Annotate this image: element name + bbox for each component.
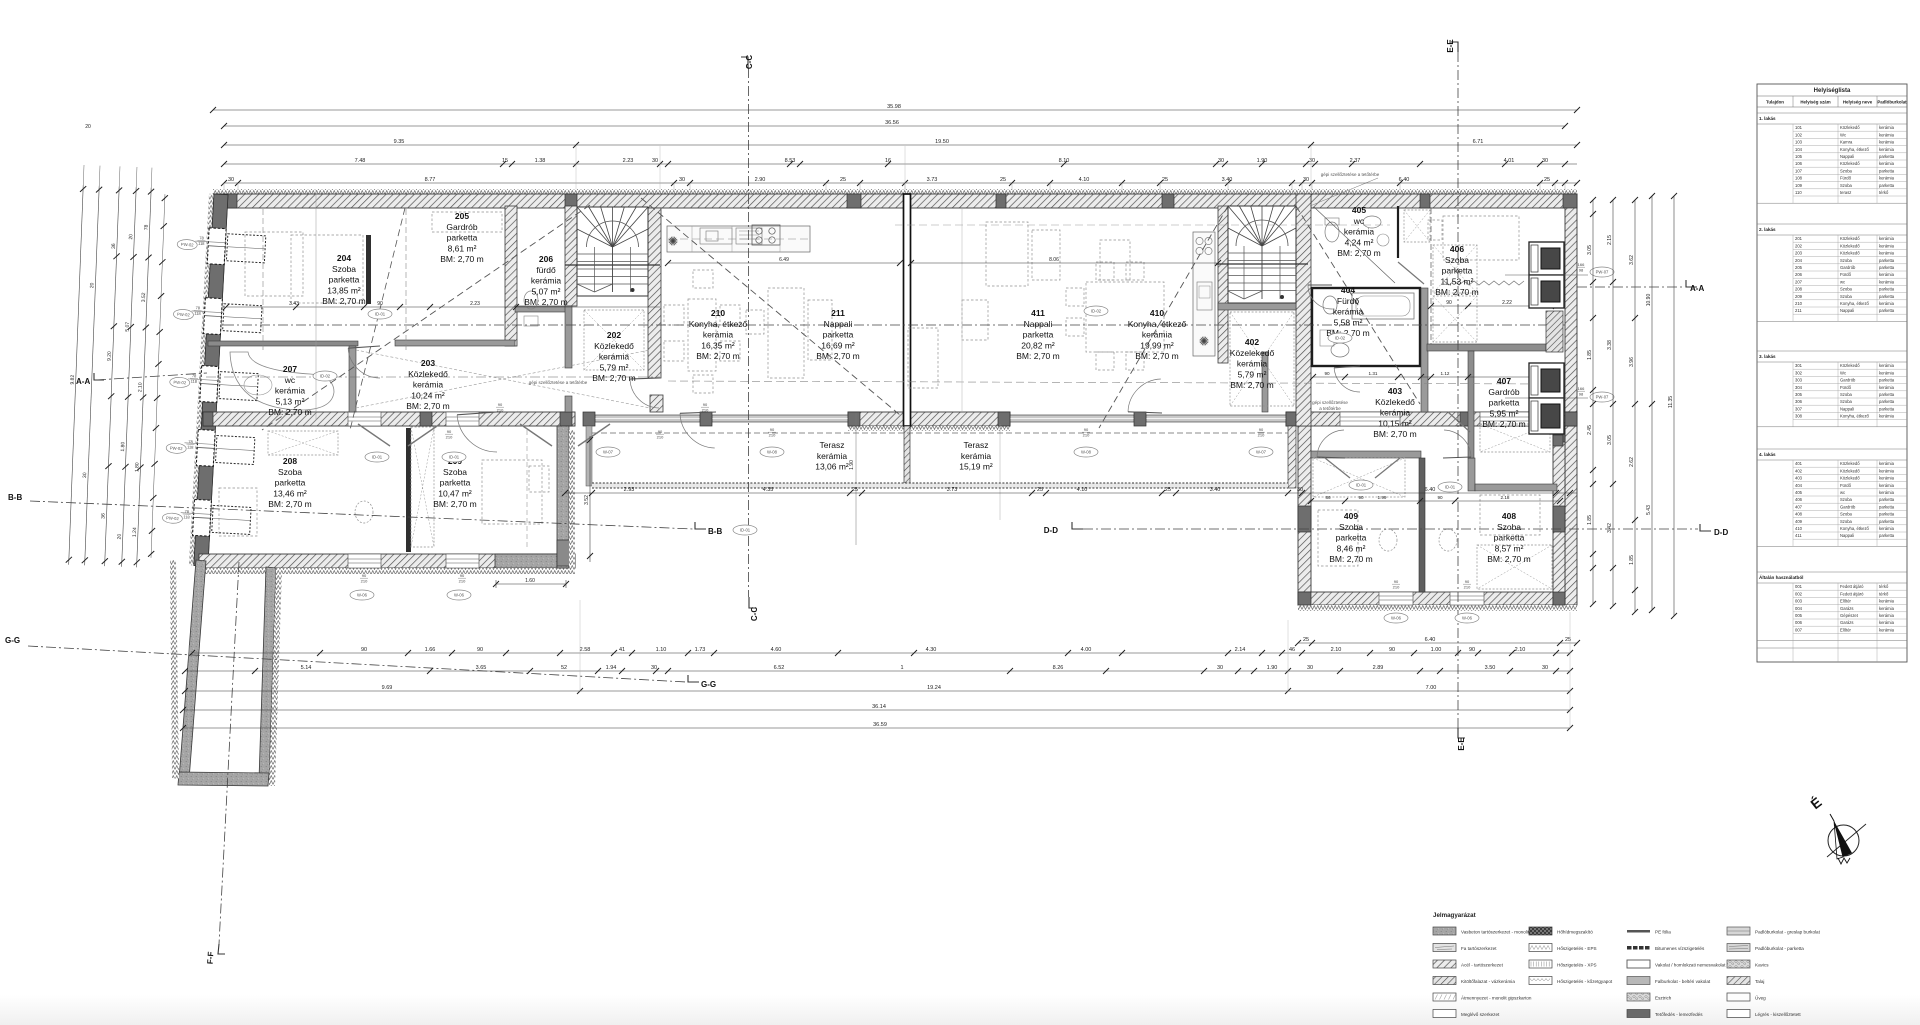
svg-text:kerámia: kerámia	[1879, 468, 1895, 473]
svg-text:BM: 2,70 m: BM: 2,70 m	[1435, 287, 1478, 297]
svg-text:2.10: 2.10	[137, 382, 143, 392]
svg-text:401: 401	[1795, 461, 1803, 466]
svg-text:Fedett átjáró: Fedett átjáró	[1840, 591, 1864, 596]
svg-text:kerámia: kerámia	[961, 451, 992, 461]
svg-text:ID-02: ID-02	[1091, 309, 1102, 314]
svg-text:W-08: W-08	[1081, 450, 1092, 455]
svg-text:104: 104	[1795, 147, 1803, 152]
svg-text:Konyha, étkező: Konyha, étkező	[1840, 147, 1870, 152]
svg-text:Helyiség neve: Helyiség neve	[1843, 100, 1873, 105]
svg-text:2. lakás: 2. lakás	[1759, 227, 1776, 232]
svg-text:8.77: 8.77	[425, 177, 436, 183]
svg-text:405: 405	[1795, 490, 1803, 495]
svg-text:Acél - tartószerkezet: Acél - tartószerkezet	[1461, 962, 1504, 967]
svg-text:Kavics: Kavics	[1755, 962, 1769, 967]
svg-text:202: 202	[1795, 243, 1803, 248]
svg-text:402: 402	[1795, 468, 1803, 473]
svg-text:Szoba: Szoba	[278, 467, 302, 477]
svg-text:1.10: 1.10	[656, 647, 667, 653]
svg-text:404: 404	[1341, 285, 1355, 295]
svg-text:20: 20	[117, 534, 123, 540]
svg-text:Fürdő: Fürdő	[1840, 483, 1852, 488]
svg-text:3.52: 3.52	[584, 495, 590, 505]
svg-text:kerámia: kerámia	[1879, 476, 1895, 481]
svg-text:4.00: 4.00	[1081, 647, 1092, 653]
svg-text:ID-01: ID-01	[1445, 485, 1456, 490]
svg-text:304: 304	[1795, 385, 1803, 390]
svg-text:E-E: E-E	[1457, 737, 1466, 751]
svg-text:parketta: parketta	[1879, 406, 1895, 411]
svg-text:Közlekedő: Közlekedő	[408, 369, 448, 379]
svg-text:parketta: parketta	[1879, 154, 1895, 159]
svg-text:Nappali: Nappali	[1840, 308, 1854, 313]
svg-text:BM: 2,70 m: BM: 2,70 m	[1337, 248, 1380, 258]
svg-text:10,24 m²: 10,24 m²	[411, 390, 445, 400]
svg-text:1.99: 1.99	[1378, 495, 1387, 500]
svg-text:3.73: 3.73	[947, 487, 958, 493]
svg-text:kerámia: kerámia	[275, 386, 306, 396]
svg-text:kerámia: kerámia	[413, 380, 444, 390]
svg-text:36.14: 36.14	[872, 704, 886, 710]
svg-text:110: 110	[1795, 190, 1802, 195]
svg-text:PW-07: PW-07	[1596, 270, 1609, 275]
svg-text:Konyha, étkező: Konyha, étkező	[689, 319, 748, 329]
svg-text:Jelmagyarázat: Jelmagyarázat	[1433, 912, 1476, 919]
svg-text:W-06: W-06	[1462, 616, 1473, 621]
svg-text:Szoba: Szoba	[1497, 522, 1521, 532]
svg-text:118: 118	[198, 241, 205, 246]
svg-text:8,57 m²: 8,57 m²	[1495, 543, 1524, 553]
svg-text:90: 90	[1324, 371, 1330, 376]
svg-text:2.93: 2.93	[624, 487, 635, 493]
svg-text:D-D: D-D	[1714, 528, 1728, 537]
svg-text:25: 25	[1165, 487, 1171, 493]
svg-text:406: 406	[1795, 497, 1803, 502]
svg-text:W-06: W-06	[1391, 616, 1402, 621]
svg-text:30: 30	[1542, 665, 1548, 671]
svg-text:parketta: parketta	[1879, 168, 1895, 173]
svg-text:9.82: 9.82	[70, 375, 76, 385]
svg-text:35.98: 35.98	[887, 104, 901, 110]
svg-text:30: 30	[679, 177, 685, 183]
svg-text:G-G: G-G	[701, 680, 716, 689]
svg-text:13,85 m²: 13,85 m²	[327, 285, 361, 295]
svg-text:gépi szellőztetése a tetőtérbe: gépi szellőztetése a tetőtérbe	[529, 380, 588, 385]
svg-text:15: 15	[502, 158, 508, 164]
svg-text:211: 211	[1795, 308, 1802, 313]
svg-text:BM: 2,70 m: BM: 2,70 m	[268, 407, 311, 417]
svg-text:Szoba: Szoba	[1840, 294, 1853, 299]
svg-text:Előtér: Előtér	[1840, 627, 1852, 632]
svg-text:204: 204	[337, 253, 351, 263]
svg-text:109: 109	[1795, 183, 1803, 188]
svg-text:210: 210	[1083, 433, 1090, 438]
svg-text:4,24 m²: 4,24 m²	[1345, 237, 1374, 247]
svg-text:205: 205	[1795, 265, 1803, 270]
svg-text:Szoba: Szoba	[1840, 519, 1853, 524]
svg-text:25: 25	[1544, 177, 1550, 183]
svg-text:Konyha, étkező: Konyha, étkező	[1840, 526, 1870, 531]
svg-text:3.05: 3.05	[1607, 435, 1613, 445]
svg-text:Közlekedő: Közlekedő	[1840, 363, 1860, 368]
svg-text:kerámia: kerámia	[1879, 606, 1895, 611]
svg-text:36.56: 36.56	[885, 120, 899, 126]
svg-text:Falburkolat - beltéri vakolat: Falburkolat - beltéri vakolat	[1655, 979, 1711, 984]
svg-text:PW-02: PW-02	[177, 312, 191, 318]
svg-text:B-B: B-B	[708, 527, 722, 536]
svg-text:90: 90	[1389, 647, 1395, 653]
svg-text:Hőszigetelés - EPS: Hőszigetelés - EPS	[1557, 946, 1597, 951]
svg-text:kerámia: kerámia	[1879, 279, 1895, 284]
svg-text:210: 210	[497, 408, 504, 413]
svg-text:2.62: 2.62	[1629, 457, 1635, 467]
svg-text:Szoba: Szoba	[1840, 497, 1853, 502]
svg-text:30: 30	[1542, 158, 1548, 164]
svg-text:Légrés - kiszellőztetett: Légrés - kiszellőztetett	[1755, 1012, 1801, 1017]
svg-text:Kitöltőfalazat - vázkerámia: Kitöltőfalazat - vázkerámia	[1461, 979, 1515, 984]
svg-text:1.80: 1.80	[134, 462, 140, 472]
svg-text:90: 90	[658, 429, 663, 434]
svg-text:Szoba: Szoba	[1445, 255, 1469, 265]
svg-text:106: 106	[1795, 161, 1803, 166]
svg-text:ID-01: ID-01	[372, 455, 383, 460]
svg-text:Helyiség szám: Helyiség szám	[1800, 100, 1830, 105]
svg-text:208: 208	[1795, 287, 1803, 292]
svg-text:20: 20	[128, 234, 134, 240]
svg-text:C-C: C-C	[745, 55, 754, 69]
svg-text:3.62: 3.62	[1629, 255, 1635, 265]
svg-text:206: 206	[1795, 272, 1803, 277]
svg-text:wc: wc	[1840, 279, 1845, 284]
svg-text:30: 30	[1217, 665, 1223, 671]
svg-text:parketta: parketta	[1879, 287, 1895, 292]
svg-text:Konyha, étkező: Konyha, étkező	[1840, 414, 1870, 419]
svg-text:Bitumenes vízszigetelés: Bitumenes vízszigetelés	[1655, 946, 1705, 951]
svg-text:PW-02: PW-02	[181, 242, 195, 248]
svg-text:90: 90	[447, 429, 452, 434]
svg-text:7.00: 7.00	[1426, 685, 1437, 691]
svg-text:211: 211	[831, 308, 845, 318]
svg-text:90: 90	[1469, 647, 1475, 653]
svg-text:Szoba: Szoba	[443, 467, 467, 477]
svg-text:005: 005	[1795, 613, 1803, 618]
svg-text:W-06: W-06	[454, 593, 465, 598]
svg-text:Tulajdon: Tulajdon	[1766, 100, 1784, 105]
svg-text:90: 90	[477, 647, 483, 653]
svg-text:4. lakás: 4. lakás	[1759, 452, 1776, 457]
svg-text:8.26: 8.26	[1053, 665, 1064, 671]
svg-text:Konyha, étkező: Konyha, étkező	[1840, 301, 1870, 306]
svg-text:Nappali: Nappali	[1840, 154, 1854, 159]
svg-text:3.40: 3.40	[1210, 487, 1221, 493]
svg-text:E-E: E-E	[1446, 39, 1455, 53]
svg-text:kerámia: kerámia	[1879, 526, 1895, 531]
svg-text:Közlekedő: Közlekedő	[1840, 161, 1860, 166]
svg-text:kerámia: kerámia	[1333, 307, 1364, 317]
svg-text:5,58 m²: 5,58 m²	[1334, 317, 1363, 327]
svg-text:306: 306	[1795, 399, 1803, 404]
svg-text:6.40: 6.40	[1399, 177, 1410, 183]
svg-text:4.60: 4.60	[771, 647, 782, 653]
svg-text:36: 36	[111, 243, 117, 249]
svg-text:BM: 2,70 m: BM: 2,70 m	[1016, 351, 1059, 361]
svg-text:kerámia: kerámia	[1879, 236, 1895, 241]
svg-text:15,19 m²: 15,19 m²	[959, 462, 993, 472]
svg-text:parketta: parketta	[329, 275, 360, 285]
svg-text:207: 207	[1795, 279, 1803, 284]
svg-text:203: 203	[1795, 251, 1803, 256]
svg-text:3.05: 3.05	[1587, 245, 1593, 255]
svg-text:ID-01: ID-01	[1356, 483, 1367, 488]
svg-text:Nappali: Nappali	[1840, 533, 1854, 538]
svg-text:101: 101	[1795, 125, 1803, 130]
svg-text:210: 210	[769, 433, 776, 438]
svg-text:térkő: térkő	[1879, 190, 1889, 195]
svg-text:118: 118	[183, 514, 190, 519]
svg-text:3.42: 3.42	[1607, 523, 1613, 533]
svg-text:407: 407	[1497, 376, 1511, 386]
svg-text:2.10: 2.10	[1331, 647, 1342, 653]
svg-text:Közelekedő: Közelekedő	[1230, 348, 1275, 358]
svg-text:90: 90	[1446, 300, 1452, 306]
svg-text:Tetőfedés - lemezfedés: Tetőfedés - lemezfedés	[1655, 1012, 1703, 1017]
svg-text:kerámia: kerámia	[1879, 243, 1895, 248]
svg-text:Közlekedő: Közlekedő	[1840, 251, 1860, 256]
svg-text:ID-02: ID-02	[1335, 336, 1346, 341]
svg-text:001: 001	[1795, 584, 1803, 589]
svg-text:90: 90	[1358, 495, 1364, 500]
svg-text:206: 206	[539, 254, 553, 264]
svg-text:BM: 2,70 m: BM: 2,70 m	[1329, 554, 1372, 564]
svg-text:wc: wc	[1353, 216, 1365, 226]
svg-text:90: 90	[770, 427, 775, 432]
svg-text:98: 98	[1579, 268, 1584, 273]
svg-text:parketta: parketta	[1879, 308, 1895, 313]
svg-text:210: 210	[1464, 585, 1471, 590]
svg-text:210: 210	[1393, 585, 1400, 590]
svg-text:78: 78	[144, 224, 150, 230]
svg-text:4.10: 4.10	[1077, 487, 1088, 493]
svg-text:19.50: 19.50	[935, 139, 949, 145]
svg-text:BM: 2,70 m: BM: 2,70 m	[1230, 380, 1273, 390]
svg-text:90: 90	[1394, 579, 1399, 584]
svg-text:BM: 2,70 m: BM: 2,70 m	[816, 351, 859, 361]
svg-text:6.40: 6.40	[1425, 637, 1436, 643]
svg-text:410: 410	[1150, 308, 1164, 318]
svg-text:19.24: 19.24	[927, 685, 941, 691]
svg-text:Közlekedő: Közlekedő	[1840, 461, 1860, 466]
svg-text:3.73: 3.73	[927, 177, 938, 183]
svg-text:411: 411	[1031, 308, 1045, 318]
svg-text:ID-02: ID-02	[320, 374, 331, 379]
svg-text:ID-01: ID-01	[449, 455, 460, 460]
svg-text:1.00: 1.00	[1431, 647, 1442, 653]
svg-text:403: 403	[1388, 386, 1402, 396]
svg-text:parketta: parketta	[440, 478, 471, 488]
svg-text:parketta: parketta	[1879, 378, 1895, 383]
svg-text:4.10: 4.10	[1079, 177, 1090, 183]
svg-text:8.53: 8.53	[785, 158, 796, 164]
svg-text:Szoba: Szoba	[1840, 392, 1853, 397]
svg-text:11.35: 11.35	[1668, 396, 1674, 408]
svg-text:kerámia: kerámia	[1879, 613, 1895, 618]
svg-text:kerámia: kerámia	[817, 451, 848, 461]
svg-text:kerámia: kerámia	[531, 276, 562, 286]
svg-text:102: 102	[1795, 132, 1803, 137]
svg-text:1. lakás: 1. lakás	[1759, 116, 1776, 121]
svg-text:A-A: A-A	[1690, 284, 1704, 293]
svg-text:kerámia: kerámia	[1344, 227, 1375, 237]
svg-text:4.35: 4.35	[763, 487, 774, 493]
svg-text:303: 303	[1795, 378, 1803, 383]
svg-text:3.50: 3.50	[1485, 665, 1496, 671]
svg-text:6.52: 6.52	[774, 665, 785, 671]
svg-text:BM: 2,70 m: BM: 2,70 m	[1482, 419, 1525, 429]
svg-text:Gépészet: Gépészet	[1840, 613, 1859, 618]
svg-text:36.59: 36.59	[873, 722, 887, 728]
svg-text:Wc: Wc	[1840, 132, 1846, 137]
svg-text:409: 409	[1795, 519, 1803, 524]
svg-text:86: 86	[1325, 495, 1331, 500]
svg-text:210: 210	[1258, 433, 1265, 438]
svg-text:3.43: 3.43	[289, 301, 299, 307]
svg-text:BM: 2,70 m: BM: 2,70 m	[433, 499, 476, 509]
svg-text:Nappali: Nappali	[1024, 319, 1053, 329]
svg-text:PW-02: PW-02	[166, 515, 180, 521]
svg-text:2.90: 2.90	[755, 177, 766, 183]
svg-text:210: 210	[459, 579, 466, 584]
svg-text:6.40: 6.40	[1425, 487, 1436, 493]
svg-text:kerámia: kerámia	[1879, 370, 1895, 375]
svg-text:Terasz: Terasz	[963, 440, 988, 450]
svg-text:Fürdő: Fürdő	[1337, 296, 1359, 306]
svg-text:16: 16	[885, 158, 891, 164]
svg-text:20: 20	[89, 282, 95, 288]
svg-text:kerámia: kerámia	[1879, 627, 1895, 632]
svg-text:2.23: 2.23	[470, 301, 480, 307]
svg-text:8.06: 8.06	[1049, 257, 1059, 263]
svg-text:kerámia: kerámia	[1879, 176, 1895, 181]
svg-text:201: 201	[1795, 236, 1803, 241]
svg-text:403: 403	[1795, 476, 1803, 481]
svg-text:2.58: 2.58	[580, 647, 591, 653]
svg-text:203: 203	[421, 358, 435, 368]
svg-text:98: 98	[1579, 392, 1584, 397]
svg-text:408: 408	[1795, 512, 1803, 517]
svg-text:90: 90	[460, 573, 465, 578]
svg-text:204: 204	[1795, 258, 1803, 263]
svg-text:118: 118	[194, 311, 201, 316]
svg-text:PE fólia: PE fólia	[1655, 929, 1671, 934]
svg-text:parketta: parketta	[1336, 533, 1367, 543]
svg-text:kerámia: kerámia	[1879, 251, 1895, 256]
svg-text:parketta: parketta	[1879, 258, 1895, 263]
svg-text:3.38: 3.38	[1607, 340, 1613, 350]
svg-text:parketta: parketta	[1023, 330, 1054, 340]
svg-text:118: 118	[191, 379, 198, 384]
svg-text:90: 90	[377, 301, 383, 307]
svg-text:parketta: parketta	[1879, 294, 1895, 299]
svg-text:408: 408	[1502, 511, 1516, 521]
svg-text:90: 90	[1437, 495, 1443, 500]
svg-text:Szoba: Szoba	[1840, 168, 1853, 173]
svg-text:Konyha, étkező: Konyha, étkező	[1128, 319, 1187, 329]
svg-text:90: 90	[361, 647, 367, 653]
svg-text:2.23: 2.23	[623, 158, 634, 164]
svg-text:PW-02: PW-02	[170, 445, 184, 451]
svg-text:406: 406	[1450, 244, 1464, 254]
svg-text:Helyiséglista: Helyiséglista	[1814, 88, 1851, 94]
svg-text:1.85: 1.85	[1629, 555, 1635, 565]
svg-text:16,35 m²: 16,35 m²	[701, 340, 735, 350]
svg-text:2.10: 2.10	[1515, 647, 1526, 653]
svg-text:6.71: 6.71	[1473, 139, 1484, 145]
svg-text:kerámia: kerámia	[1380, 408, 1411, 418]
svg-text:2.37: 2.37	[1350, 158, 1361, 164]
svg-text:Közlekedő: Közlekedő	[1840, 125, 1860, 130]
svg-text:Fürdő: Fürdő	[1840, 272, 1852, 277]
svg-text:36: 36	[100, 513, 106, 519]
svg-text:1.60: 1.60	[525, 578, 535, 584]
svg-text:10,15 m²: 10,15 m²	[1378, 418, 1412, 428]
svg-text:166: 166	[1578, 386, 1585, 391]
svg-text:1.85: 1.85	[1587, 350, 1593, 360]
svg-text:004: 004	[1795, 606, 1803, 611]
svg-text:parketta: parketta	[1879, 497, 1895, 502]
svg-text:25: 25	[1303, 637, 1309, 643]
svg-text:Padlóburkolat: Padlóburkolat	[1877, 100, 1907, 105]
svg-text:2.45: 2.45	[1587, 425, 1593, 435]
svg-text:kerámia: kerámia	[1879, 301, 1895, 306]
svg-text:2.18: 2.18	[1501, 495, 1510, 500]
svg-text:1.90: 1.90	[1257, 158, 1268, 164]
svg-text:30: 30	[651, 665, 657, 671]
svg-text:parketta: parketta	[1879, 533, 1895, 538]
svg-text:kerámia: kerámia	[1879, 132, 1895, 137]
svg-text:118: 118	[187, 444, 194, 449]
svg-text:kerámia: kerámia	[1879, 363, 1895, 368]
svg-text:411: 411	[1795, 533, 1802, 538]
svg-text:5.43: 5.43	[1646, 505, 1652, 515]
svg-text:5,79 m²: 5,79 m²	[600, 362, 629, 372]
svg-text:402: 402	[1245, 337, 1259, 347]
svg-text:1.73: 1.73	[695, 647, 706, 653]
svg-text:2.89: 2.89	[1373, 665, 1384, 671]
svg-text:5.07: 5.07	[125, 322, 131, 332]
svg-text:003: 003	[1795, 599, 1803, 604]
svg-text:4.30: 4.30	[926, 647, 937, 653]
svg-text:13,06 m²: 13,06 m²	[815, 462, 849, 472]
svg-text:W-08: W-08	[767, 450, 778, 455]
svg-text:3.40: 3.40	[1222, 177, 1233, 183]
svg-text:wc: wc	[284, 375, 296, 385]
svg-text:fürdő: fürdő	[536, 265, 556, 275]
svg-text:202: 202	[607, 330, 621, 340]
svg-text:8,61 m²: 8,61 m²	[448, 243, 477, 253]
svg-text:G-G: G-G	[5, 636, 20, 645]
svg-text:parketta: parketta	[1494, 533, 1525, 543]
svg-text:10.90: 10.90	[1646, 294, 1652, 307]
svg-text:308: 308	[1795, 414, 1803, 419]
svg-text:404: 404	[1795, 483, 1803, 488]
svg-text:9.20: 9.20	[107, 351, 113, 361]
svg-text:W-07: W-07	[603, 450, 614, 455]
svg-text:Közlekedő: Közlekedő	[1840, 468, 1860, 473]
svg-text:5,95 m²: 5,95 m²	[1490, 408, 1519, 418]
svg-text:Gardrób: Gardrób	[1840, 265, 1856, 270]
svg-text:parketta: parketta	[1489, 398, 1520, 408]
svg-text:30: 30	[1303, 177, 1309, 183]
